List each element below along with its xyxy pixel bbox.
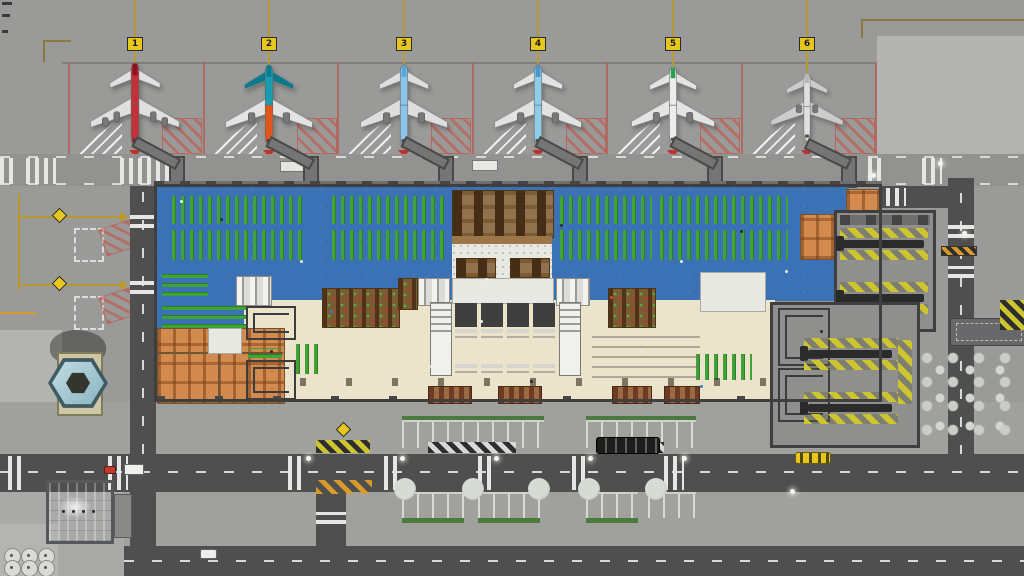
bench[interactable] bbox=[248, 348, 282, 358]
gate-seating[interactable] bbox=[332, 196, 444, 224]
baggage-belt[interactable] bbox=[842, 294, 924, 302]
belt-hazard bbox=[804, 392, 898, 402]
restroom[interactable] bbox=[700, 272, 766, 312]
airport-overview: 1 2 3 4 5 6 bbox=[0, 0, 1024, 576]
boundary-line bbox=[861, 19, 1024, 21]
edge-objects bbox=[2, 30, 8, 33]
security-lanes[interactable] bbox=[236, 276, 272, 306]
check-in-desk-row[interactable] bbox=[533, 303, 555, 373]
check-in-desk-row[interactable] bbox=[455, 303, 477, 373]
taxi-zone-stripes bbox=[316, 480, 372, 494]
entrance-canopy[interactable] bbox=[498, 386, 542, 404]
queue-barriers[interactable] bbox=[246, 360, 296, 400]
stand-sign[interactable]: 6 bbox=[799, 37, 815, 51]
gate-seating[interactable] bbox=[162, 272, 208, 296]
crosswalk bbox=[948, 266, 974, 278]
service-truck[interactable] bbox=[472, 160, 498, 171]
gate-seating[interactable] bbox=[172, 196, 304, 224]
belt-fork bbox=[800, 400, 808, 415]
storage-tank[interactable] bbox=[21, 560, 38, 576]
crosswalk bbox=[948, 222, 974, 238]
tree-cluster[interactable] bbox=[916, 348, 1018, 444]
queue-barriers[interactable] bbox=[246, 306, 296, 340]
street-lamp[interactable] bbox=[306, 456, 311, 461]
boundary-line bbox=[861, 19, 863, 38]
kiosk-row[interactable] bbox=[300, 378, 770, 386]
edge-objects bbox=[2, 2, 12, 5]
truck[interactable] bbox=[124, 464, 144, 475]
glass-roof-highlight bbox=[58, 496, 92, 518]
cafe-tables[interactable] bbox=[456, 258, 496, 278]
entrance-canopy[interactable] bbox=[664, 386, 700, 404]
storage-tank[interactable] bbox=[4, 560, 21, 576]
hedge bbox=[402, 518, 464, 523]
food-court-counter bbox=[452, 236, 552, 244]
cafe-tables[interactable] bbox=[510, 258, 550, 278]
bench[interactable] bbox=[296, 344, 318, 374]
check-in-queues bbox=[592, 332, 700, 378]
stand-divider bbox=[606, 62, 608, 156]
stand-divider bbox=[203, 62, 205, 156]
stand-sign[interactable]: 2 bbox=[261, 37, 277, 51]
bench[interactable] bbox=[696, 354, 752, 380]
hedge bbox=[478, 518, 540, 523]
dock-row bbox=[840, 215, 930, 225]
gate-seating[interactable] bbox=[560, 230, 652, 260]
storage-tank[interactable] bbox=[38, 560, 55, 576]
stand-divider bbox=[875, 62, 877, 156]
gate-seating[interactable] bbox=[162, 302, 246, 328]
aircraft-stand-6[interactable] bbox=[768, 66, 846, 150]
tree[interactable] bbox=[578, 478, 600, 500]
belt-hazard bbox=[840, 228, 928, 238]
taxi-line bbox=[18, 216, 122, 218]
belt-fork bbox=[836, 236, 844, 251]
shop[interactable] bbox=[322, 288, 400, 328]
belt-hazard bbox=[804, 338, 898, 348]
stand-divider bbox=[741, 62, 743, 156]
crosswalk bbox=[0, 158, 16, 184]
belt-hazard bbox=[840, 282, 928, 292]
street-lamp[interactable] bbox=[790, 489, 795, 494]
boundary-line bbox=[43, 40, 71, 42]
belt-hazard bbox=[804, 414, 898, 424]
crosswalk bbox=[664, 456, 684, 490]
shop[interactable] bbox=[398, 278, 418, 310]
crosswalk bbox=[886, 188, 906, 206]
bus[interactable] bbox=[596, 437, 660, 454]
crosswalk bbox=[130, 214, 156, 228]
taxi-sign[interactable] bbox=[52, 276, 68, 292]
taxi-sign[interactable] bbox=[52, 208, 68, 224]
crosswalk bbox=[316, 512, 346, 524]
street-lamp[interactable] bbox=[682, 456, 687, 461]
stair-room[interactable] bbox=[208, 328, 242, 354]
car[interactable] bbox=[200, 549, 217, 559]
terminal-dock-wall bbox=[154, 181, 882, 186]
belt-hazard bbox=[804, 360, 898, 370]
concrete-pad-top-right bbox=[877, 36, 1024, 156]
entrance-canopy[interactable] bbox=[428, 386, 472, 404]
edge-objects bbox=[2, 14, 10, 17]
office-wall bbox=[218, 352, 220, 402]
crosswalk bbox=[26, 158, 56, 184]
apron-line-orange bbox=[0, 312, 36, 314]
check-in-desk-row[interactable] bbox=[481, 303, 503, 373]
crosswalk bbox=[288, 456, 304, 490]
barrier-gate[interactable] bbox=[941, 246, 977, 256]
road-dash bbox=[0, 471, 1024, 473]
shop[interactable] bbox=[608, 288, 656, 328]
entrance-dots bbox=[62, 510, 65, 513]
taxi-line bbox=[18, 194, 20, 290]
stand-sign[interactable]: 4 bbox=[530, 37, 546, 51]
stand-sign[interactable]: 5 bbox=[665, 37, 681, 51]
hazard-pad bbox=[1000, 300, 1024, 330]
street-lamp[interactable] bbox=[871, 173, 876, 178]
bus-stop-hazard bbox=[316, 440, 370, 453]
stand-sign[interactable]: 1 bbox=[127, 37, 143, 51]
entrance-canopy[interactable] bbox=[612, 386, 652, 404]
gate-seating[interactable] bbox=[660, 230, 788, 260]
street-lamp[interactable] bbox=[962, 231, 967, 236]
main-road bbox=[0, 454, 1024, 492]
crosswalk bbox=[130, 280, 156, 294]
belt-hazard bbox=[840, 250, 928, 260]
belt-hazard-vertical bbox=[898, 340, 912, 404]
stairwell[interactable] bbox=[559, 302, 581, 376]
belt-fork bbox=[800, 346, 808, 361]
taxi-line bbox=[18, 284, 122, 286]
road-dash bbox=[124, 560, 1024, 562]
gate-seating[interactable] bbox=[660, 196, 788, 224]
baggage-belt[interactable] bbox=[808, 404, 892, 412]
stairwell[interactable] bbox=[430, 302, 452, 376]
street-lamp[interactable] bbox=[938, 161, 943, 166]
stand-sign[interactable]: 3 bbox=[396, 37, 412, 51]
tree[interactable] bbox=[645, 478, 667, 500]
tree[interactable] bbox=[528, 478, 550, 500]
street-lamp[interactable] bbox=[400, 456, 405, 461]
road-marking-yellow bbox=[795, 452, 831, 464]
check-in-desk-row[interactable] bbox=[507, 303, 529, 373]
tree[interactable] bbox=[394, 478, 416, 500]
street-lamp[interactable] bbox=[588, 456, 593, 461]
baggage-belt[interactable] bbox=[808, 350, 892, 358]
stand-divider bbox=[337, 62, 339, 156]
people bbox=[180, 200, 183, 203]
stand-divider bbox=[68, 62, 70, 156]
cafe-orange[interactable] bbox=[800, 214, 838, 260]
gate-seating[interactable] bbox=[172, 230, 304, 260]
tree[interactable] bbox=[462, 478, 484, 500]
food-court[interactable] bbox=[452, 190, 554, 238]
stand-divider bbox=[472, 62, 474, 156]
baggage-belt[interactable] bbox=[842, 240, 924, 248]
boundary-line bbox=[43, 40, 45, 62]
street-lamp[interactable] bbox=[494, 456, 499, 461]
hedge bbox=[586, 518, 638, 523]
crosswalk bbox=[8, 456, 26, 490]
gate-seating[interactable] bbox=[560, 196, 652, 224]
corridor bbox=[452, 278, 554, 304]
car-red[interactable] bbox=[104, 466, 116, 474]
building-annex bbox=[114, 494, 132, 538]
gate-seating[interactable] bbox=[332, 230, 444, 260]
stop-hazard bbox=[428, 442, 516, 453]
